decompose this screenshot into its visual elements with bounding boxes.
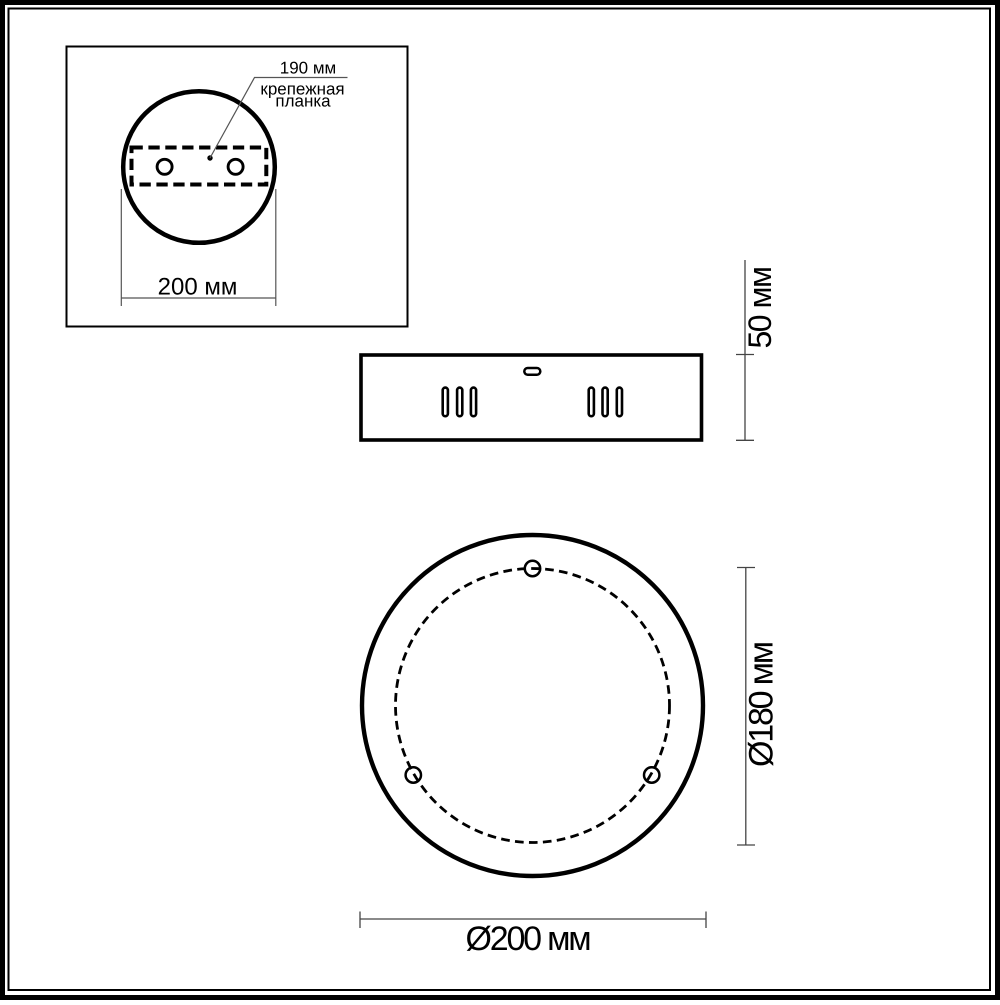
svg-text:50 мм: 50 мм — [742, 268, 778, 349]
svg-text:Ø180 мм: Ø180 мм — [743, 642, 781, 767]
svg-text:Ø200 мм: Ø200 мм — [466, 920, 591, 958]
svg-text:планка: планка — [275, 91, 331, 110]
svg-text:200 мм: 200 мм — [158, 273, 238, 300]
svg-text:190 мм: 190 мм — [280, 58, 336, 77]
